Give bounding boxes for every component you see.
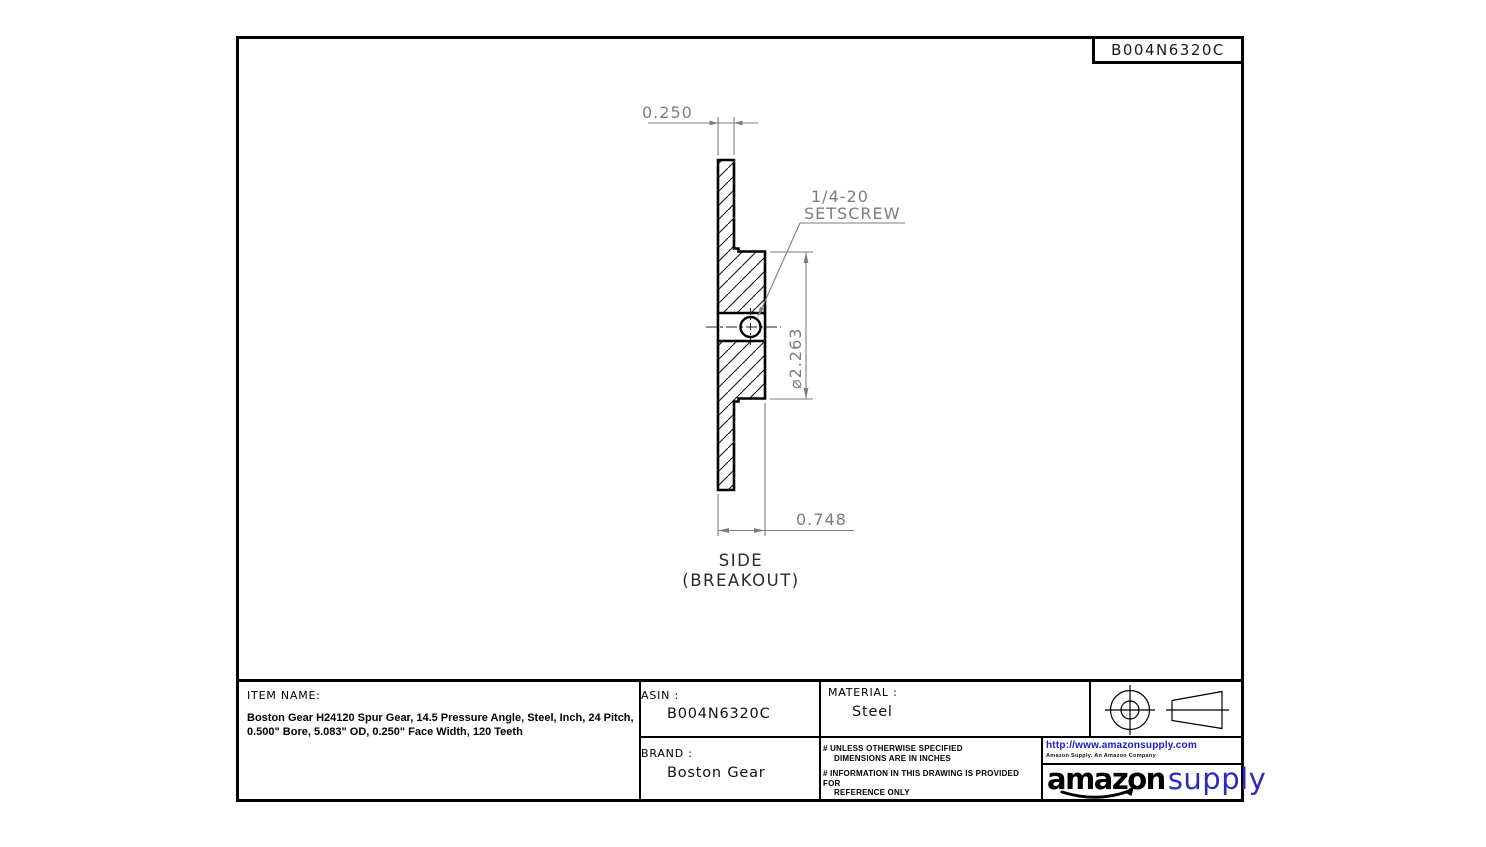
brand-label: BRAND : (641, 747, 693, 760)
note-2-line1: # INFORMATION IN THIS DRAWING IS PROVIDE… (823, 769, 1038, 788)
projection-symbol-icon (1105, 685, 1229, 735)
dim-overall-width: 0.748 (796, 510, 847, 529)
item-name-label: ITEM NAME: (247, 689, 321, 702)
amazon-logo-text: amazon (1047, 763, 1165, 796)
dim-face-width-group (648, 117, 758, 155)
brand-value: Boston Gear (667, 765, 766, 781)
amazonsupply-tagline: Amazon Supply. An Amazon Company (1046, 753, 1156, 759)
view-label-line2: (BREAKOUT) (682, 571, 799, 590)
titleblock-divider-4 (1041, 736, 1043, 801)
note-1-line1: # UNLESS OTHERWISE SPECIFIED (823, 744, 1038, 754)
amazonsupply-logo: amazon supply (1047, 763, 1241, 799)
setscrew-leader (758, 223, 906, 318)
titleblock-divider-2 (819, 679, 821, 801)
titleblock-row-rule (640, 736, 1243, 738)
setscrew-callout-line2: SETSCREW (804, 204, 900, 223)
note-1-line2: DIMENSIONS ARE IN INCHES (823, 754, 1038, 764)
note-2-line2: REFERENCE ONLY (823, 788, 1038, 798)
view-label-line1: SIDE (719, 551, 763, 570)
asin-label: ASIN : (641, 689, 679, 702)
dim-face-width: 0.250 (642, 103, 693, 122)
titleblock-divider-3 (1089, 679, 1091, 738)
asin-value: B004N6320C (667, 706, 771, 722)
item-name-value: Boston Gear H24120 Spur Gear, 14.5 Press… (247, 712, 639, 739)
dim-hub-diameter: ⌀2.263 (786, 328, 805, 389)
titleblock-top-rule (239, 679, 1243, 682)
supply-logo-text: supply (1168, 763, 1267, 796)
drawing-notes: # UNLESS OTHERWISE SPECIFIED DIMENSIONS … (823, 744, 1038, 798)
asin-plate: B004N6320C (1092, 36, 1244, 64)
material-value: Steel (852, 704, 893, 720)
drawing-page: 0.250 0.748 ⌀2.263 1/4-20 SETSCREW SIDE … (0, 0, 1486, 847)
amazonsupply-url: http://www.amazonsupply.com (1046, 740, 1197, 751)
material-label: MATERIAL : (828, 686, 898, 699)
item-name-line1: Boston Gear H24120 Spur Gear, 14.5 Press… (247, 712, 639, 726)
asin-plate-text: B004N6320C (1111, 41, 1225, 59)
item-name-line2: 0.500" Bore, 5.083" OD, 0.250" Face Widt… (247, 726, 639, 740)
